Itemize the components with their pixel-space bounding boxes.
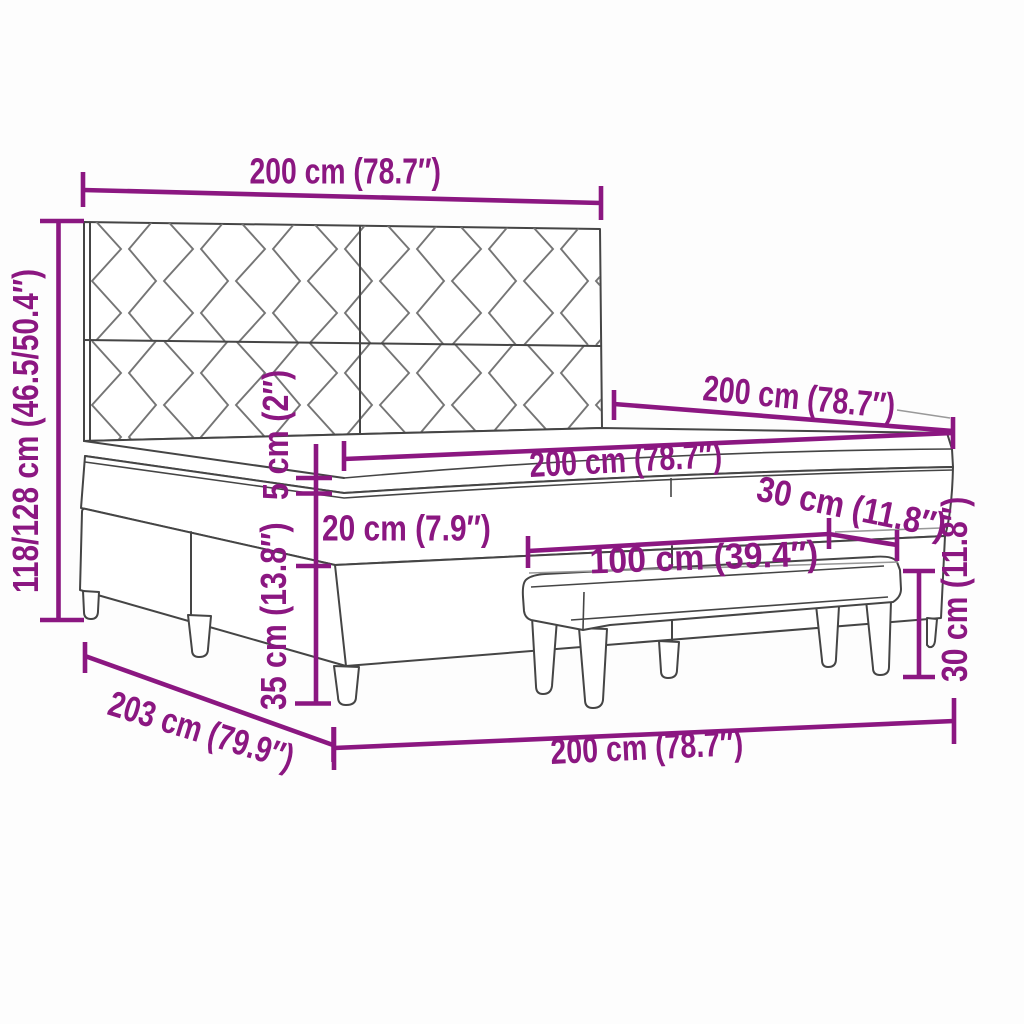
svg-text:200 cm (78.7″): 200 cm (78.7″) [250, 151, 441, 191]
svg-text:30 cm (11.8″): 30 cm (11.8″) [936, 497, 976, 682]
svg-text:100 cm (39.4″): 100 cm (39.4″) [589, 534, 819, 582]
svg-text:5 cm (2″): 5 cm (2″) [257, 370, 297, 500]
svg-text:20 cm (7.9″): 20 cm (7.9″) [322, 509, 491, 549]
svg-text:35 cm (13.8″): 35 cm (13.8″) [255, 522, 295, 710]
svg-text:118/128 cm (46.5/50.4″): 118/128 cm (46.5/50.4″) [6, 269, 46, 593]
